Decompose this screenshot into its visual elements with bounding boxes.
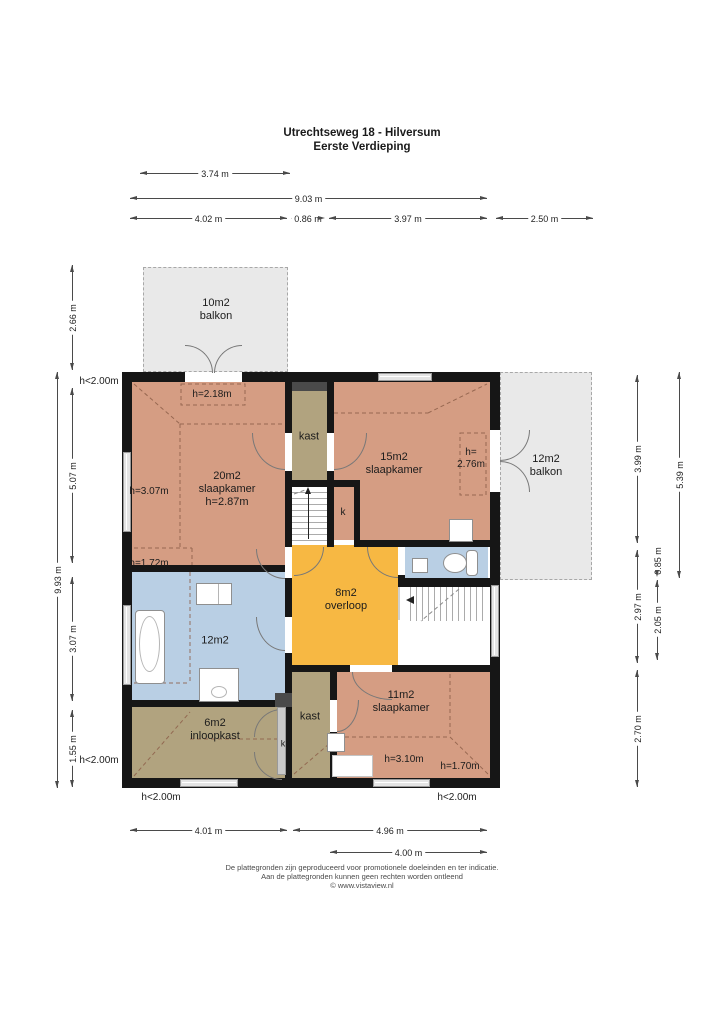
wall-k1-right bbox=[354, 487, 360, 547]
height-s20-left: h=3.07m bbox=[129, 486, 168, 498]
wall-top bbox=[122, 372, 500, 382]
wall-toilet-top bbox=[354, 540, 500, 547]
dim-left-b: 5.07 m bbox=[72, 388, 73, 563]
label-kast-bottom: kast bbox=[300, 710, 320, 723]
dim-top-c2: 0.86 m bbox=[291, 218, 325, 219]
window-right bbox=[491, 585, 499, 657]
wall-kast-stairs bbox=[285, 480, 360, 487]
height-s11-b: h=1.70m bbox=[440, 761, 479, 773]
door-gap-balcony-r bbox=[490, 430, 500, 492]
floor-plan-page: Utrechtseweg 18 - Hilversum Eerste Verdi… bbox=[0, 0, 725, 1024]
wall-bottom bbox=[122, 778, 500, 788]
window-bottom-1 bbox=[180, 779, 238, 787]
wall-left bbox=[122, 372, 132, 788]
dim-right-e: 2.05 m bbox=[657, 580, 658, 660]
label-inloopkast: 6m2inloopkast bbox=[190, 717, 240, 743]
door-gap-kast-right bbox=[327, 433, 334, 471]
label-overloop: 8m2overloop bbox=[325, 587, 367, 613]
dim-bottom-b: 4.96 m bbox=[293, 830, 487, 831]
dim-left-d: 3.07 m bbox=[72, 577, 73, 701]
dim-top-c4: 2.50 m bbox=[496, 218, 593, 219]
height-s11-a: h=3.10m bbox=[384, 754, 423, 766]
door-gap-balcony-tl bbox=[185, 372, 242, 382]
stairs-down-arrow bbox=[406, 596, 414, 604]
stairs-down bbox=[405, 587, 487, 621]
wall-overloop-left bbox=[285, 547, 292, 778]
bath-toilet bbox=[196, 583, 232, 605]
label-slaapkamer-20: 20m2slaapkamerh=2.87m bbox=[199, 470, 256, 510]
dim-left-c: 9.93 m bbox=[57, 372, 58, 788]
door-gap-toilet bbox=[398, 547, 405, 575]
label-k2: k bbox=[281, 739, 286, 750]
label-k1: k bbox=[341, 507, 346, 519]
vanity-basin bbox=[211, 686, 227, 698]
slaapkamer15-sink bbox=[449, 519, 473, 542]
label-balkon-r: 12m2balkon bbox=[530, 453, 562, 479]
wc-bowl bbox=[443, 553, 467, 573]
dim-top-c3: 3.97 m bbox=[329, 218, 487, 219]
label-slaapkamer-15: 15m2slaapkamer bbox=[366, 451, 423, 477]
door-gap-slaapkamer11 bbox=[350, 665, 392, 672]
bathtub-basin bbox=[139, 616, 160, 672]
window-top bbox=[378, 373, 432, 381]
door-gap-badkamer bbox=[285, 617, 292, 653]
stairs-up-arrow-line bbox=[308, 493, 309, 539]
dim-right-d: 0.85 m bbox=[657, 545, 658, 577]
label-balkon-tl: 10m2balkon bbox=[200, 297, 232, 323]
stairs-up bbox=[292, 487, 327, 543]
door-gap-kast-bottom bbox=[330, 700, 337, 732]
dim-top-balcony: 3.74 m bbox=[140, 173, 290, 174]
dim-bottom-c: 4.00 m bbox=[330, 852, 487, 853]
stair-rail bbox=[398, 587, 400, 620]
height-note-sw: h<2.00m bbox=[79, 755, 118, 767]
slaapkamer11-niche bbox=[332, 755, 373, 777]
dim-right-a: 3.99 m bbox=[637, 375, 638, 543]
wc-tank bbox=[466, 550, 478, 576]
door-gap-slaapkamer20 bbox=[285, 547, 292, 578]
dim-right-b: 2.97 m bbox=[637, 550, 638, 663]
room-kast-bottom bbox=[292, 672, 330, 778]
bath-toilet-divider bbox=[218, 584, 219, 604]
page-subtitle: Eerste Verdieping bbox=[313, 141, 410, 153]
footer-line-2: Aan de plattegronden kunnen geen rechten… bbox=[261, 872, 463, 881]
slaapkamer11-sink bbox=[327, 733, 345, 752]
dim-right-f: 5.39 m bbox=[679, 372, 680, 578]
dim-bottom-a: 4.01 m bbox=[130, 830, 287, 831]
height-note-s1: h<2.00m bbox=[141, 792, 180, 804]
label-slaapkamer-11: 11m2slaapkamer bbox=[373, 689, 430, 715]
toilet-sink bbox=[412, 558, 428, 573]
vent-block bbox=[292, 382, 327, 391]
bathtub bbox=[135, 610, 165, 684]
height-s20-door: h=2.18m bbox=[192, 389, 231, 401]
page-title: Utrechtseweg 18 - Hilversum bbox=[283, 127, 440, 139]
height-note-s2: h<2.00m bbox=[437, 792, 476, 804]
wall-below-toilet bbox=[398, 578, 500, 587]
footer-line-1: De plattegronden zijn geproduceerd voor … bbox=[225, 863, 498, 872]
dim-left-a: 2.66 m bbox=[72, 265, 73, 370]
dim-top-total: 9.03 m bbox=[130, 198, 487, 199]
wall-block bbox=[275, 693, 292, 707]
vanity-sink bbox=[199, 668, 239, 702]
window-left-2 bbox=[123, 605, 131, 685]
height-s15: h=2.76m bbox=[457, 447, 485, 471]
label-kast-top: kast bbox=[299, 430, 319, 443]
door-gap-kast-left bbox=[285, 433, 292, 471]
dim-left-e: 1.55 m bbox=[72, 710, 73, 787]
dim-right-c: 2.70 m bbox=[637, 670, 638, 787]
window-bottom-2 bbox=[373, 779, 430, 787]
footer-line-3: © www.vistaview.nl bbox=[330, 881, 393, 890]
dim-top-c1: 4.02 m bbox=[130, 218, 287, 219]
stairs-up-arrow-head bbox=[305, 487, 311, 494]
label-badkamer: 12m2 bbox=[201, 634, 229, 647]
height-s20-low: h=1.72m bbox=[129, 558, 168, 570]
height-note-nw: h<2.00m bbox=[79, 376, 118, 388]
